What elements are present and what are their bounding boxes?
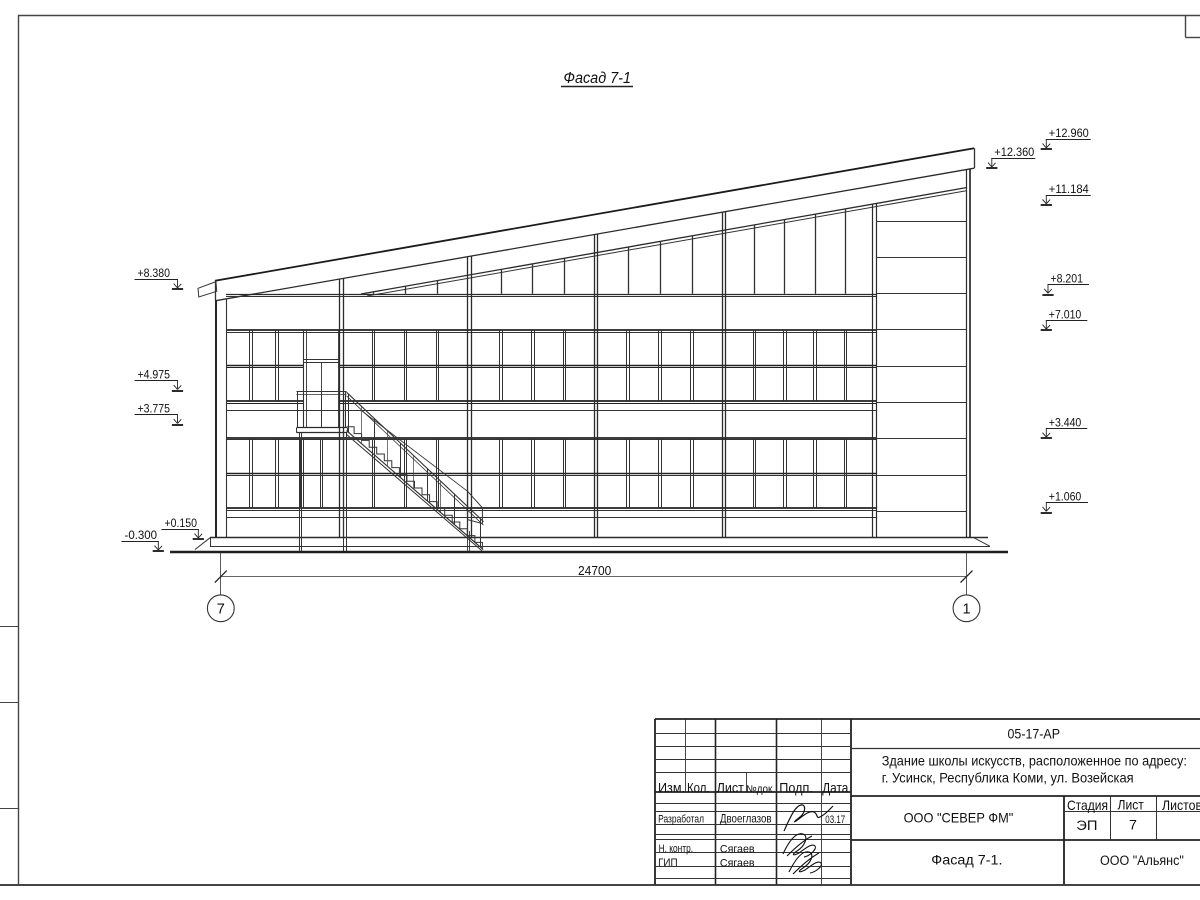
svg-text:+12.960: +12.960: [1049, 126, 1089, 140]
svg-text:+7.010: +7.010: [1049, 307, 1082, 321]
svg-text:ООО "Альянс": ООО "Альянс": [1100, 853, 1184, 869]
svg-text:03.17: 03.17: [825, 814, 845, 826]
svg-text:ГИП: ГИП: [658, 857, 678, 869]
svg-text:ООО "СЕВЕР ФМ": ООО "СЕВЕР ФМ": [904, 809, 1014, 825]
svg-text:Лист: Лист: [1118, 797, 1144, 812]
svg-text:Двоеглазов: Двоеглазов: [720, 812, 772, 826]
svg-text:-0.300: -0.300: [125, 528, 158, 542]
svg-text:Кол.: Кол.: [687, 779, 710, 795]
svg-text:+8.201: +8.201: [1051, 271, 1084, 285]
svg-text:г. Усинск, Республика Коми, ул: г. Усинск, Республика Коми, ул. Возейска…: [882, 770, 1134, 786]
svg-text:+11.184: +11.184: [1049, 182, 1089, 196]
svg-text:№док.: №док.: [746, 784, 775, 796]
svg-text:Стадия: Стадия: [1067, 798, 1108, 813]
svg-text:1: 1: [962, 601, 970, 617]
svg-text:Фасад 7-1.: Фасад 7-1.: [931, 852, 1002, 868]
svg-text:Здание школы искусств, располо: Здание школы искусств, расположенное по …: [882, 753, 1187, 769]
svg-text:24700: 24700: [578, 563, 611, 578]
svg-text:Фасад 7-1: Фасад 7-1: [564, 70, 632, 87]
svg-text:05-17-АР: 05-17-АР: [1008, 727, 1061, 742]
svg-text:+3.440: +3.440: [1049, 415, 1082, 429]
svg-text:+0.150: +0.150: [165, 516, 198, 530]
svg-text:7: 7: [1129, 818, 1137, 834]
svg-text:Разработал: Разработал: [658, 814, 704, 826]
svg-text:+4.975: +4.975: [138, 368, 171, 382]
svg-text:+1.060: +1.060: [1049, 490, 1082, 504]
svg-text:+8.380: +8.380: [138, 266, 171, 280]
svg-text:Дата: Дата: [822, 779, 848, 795]
svg-text:Листов: Листов: [1162, 798, 1200, 813]
svg-text:+12.360: +12.360: [994, 145, 1034, 159]
svg-text:+3.775: +3.775: [138, 402, 171, 416]
svg-text:ЭП: ЭП: [1076, 818, 1097, 834]
svg-text:Изм.: Изм.: [658, 779, 685, 795]
svg-text:Подп.: Подп.: [779, 779, 813, 795]
svg-text:Сягаев: Сягаев: [720, 858, 755, 870]
svg-text:Сягаев: Сягаев: [720, 843, 755, 855]
svg-text:7: 7: [217, 601, 225, 617]
svg-text:Лист: Лист: [717, 779, 745, 795]
svg-text:Н. контр.: Н. контр.: [659, 843, 694, 855]
